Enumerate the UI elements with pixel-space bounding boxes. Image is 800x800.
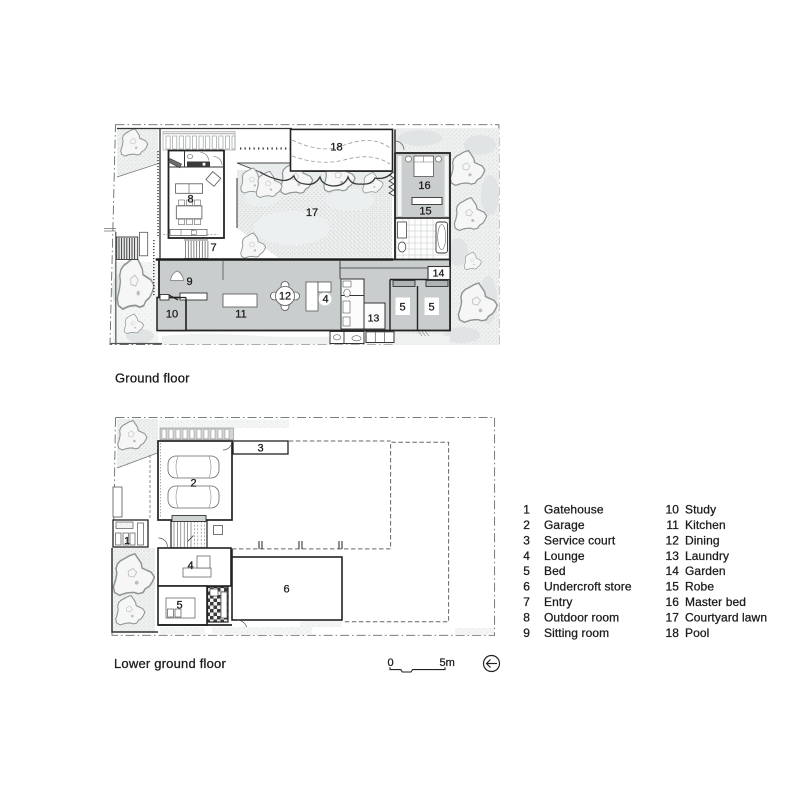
svg-text:Outdoor room: Outdoor room (544, 610, 619, 624)
svg-text:5m: 5m (440, 657, 455, 669)
svg-text:Pool: Pool (685, 626, 709, 640)
svg-text:Sitting room: Sitting room (544, 626, 609, 640)
svg-text:5: 5 (523, 564, 530, 578)
svg-text:Laundry: Laundry (685, 549, 729, 563)
svg-text:4: 4 (187, 560, 193, 572)
svg-text:12: 12 (665, 533, 679, 547)
svg-text:5: 5 (428, 302, 434, 314)
svg-text:Garden: Garden (685, 564, 726, 578)
svg-text:16: 16 (665, 595, 679, 609)
svg-text:Undercroft store: Undercroft store (544, 580, 632, 594)
svg-text:Master bed: Master bed (685, 595, 746, 609)
svg-text:8: 8 (187, 194, 193, 206)
svg-text:Lounge: Lounge (544, 549, 585, 563)
svg-text:1: 1 (523, 503, 530, 517)
svg-text:Gatehouse: Gatehouse (544, 503, 604, 517)
svg-text:3: 3 (257, 443, 263, 455)
svg-text:Bed: Bed (544, 564, 566, 578)
svg-text:14: 14 (433, 268, 445, 280)
svg-text:4: 4 (322, 294, 328, 306)
svg-text:Lower ground floor: Lower ground floor (114, 656, 226, 671)
svg-text:2: 2 (190, 478, 196, 490)
svg-text:18: 18 (330, 142, 342, 154)
svg-text:6: 6 (283, 584, 289, 596)
svg-text:13: 13 (368, 313, 380, 325)
svg-text:Courtyard lawn: Courtyard lawn (685, 610, 767, 624)
svg-text:16: 16 (418, 180, 430, 192)
svg-text:14: 14 (665, 564, 679, 578)
svg-text:3: 3 (523, 533, 530, 547)
svg-text:9: 9 (523, 626, 530, 640)
svg-text:Robe: Robe (685, 580, 714, 594)
svg-text:7: 7 (210, 242, 216, 254)
svg-text:10: 10 (665, 503, 679, 517)
svg-text:Dining: Dining (685, 533, 720, 547)
svg-text:0: 0 (387, 657, 393, 669)
svg-text:2: 2 (523, 518, 530, 532)
svg-text:12: 12 (279, 291, 291, 303)
svg-text:7: 7 (523, 595, 530, 609)
svg-text:1: 1 (124, 535, 130, 547)
svg-text:15: 15 (665, 580, 679, 594)
svg-text:9: 9 (186, 276, 192, 288)
svg-text:13: 13 (665, 549, 679, 563)
svg-text:6: 6 (523, 580, 530, 594)
svg-text:17: 17 (665, 610, 679, 624)
svg-text:10: 10 (166, 309, 178, 321)
svg-text:Study: Study (685, 503, 716, 517)
svg-text:11: 11 (235, 309, 246, 321)
svg-text:17: 17 (306, 207, 318, 219)
svg-text:11: 11 (666, 518, 679, 532)
svg-text:Service court: Service court (544, 533, 616, 547)
svg-text:5: 5 (399, 302, 405, 314)
svg-text:Kitchen: Kitchen (685, 518, 726, 532)
svg-text:15: 15 (419, 206, 431, 218)
svg-text:Entry: Entry (544, 595, 573, 609)
svg-text:Ground floor: Ground floor (115, 371, 190, 386)
svg-text:8: 8 (523, 610, 530, 624)
svg-text:Garage: Garage (544, 518, 585, 532)
svg-text:18: 18 (665, 626, 679, 640)
svg-text:4: 4 (523, 549, 530, 563)
svg-text:5: 5 (176, 600, 182, 612)
